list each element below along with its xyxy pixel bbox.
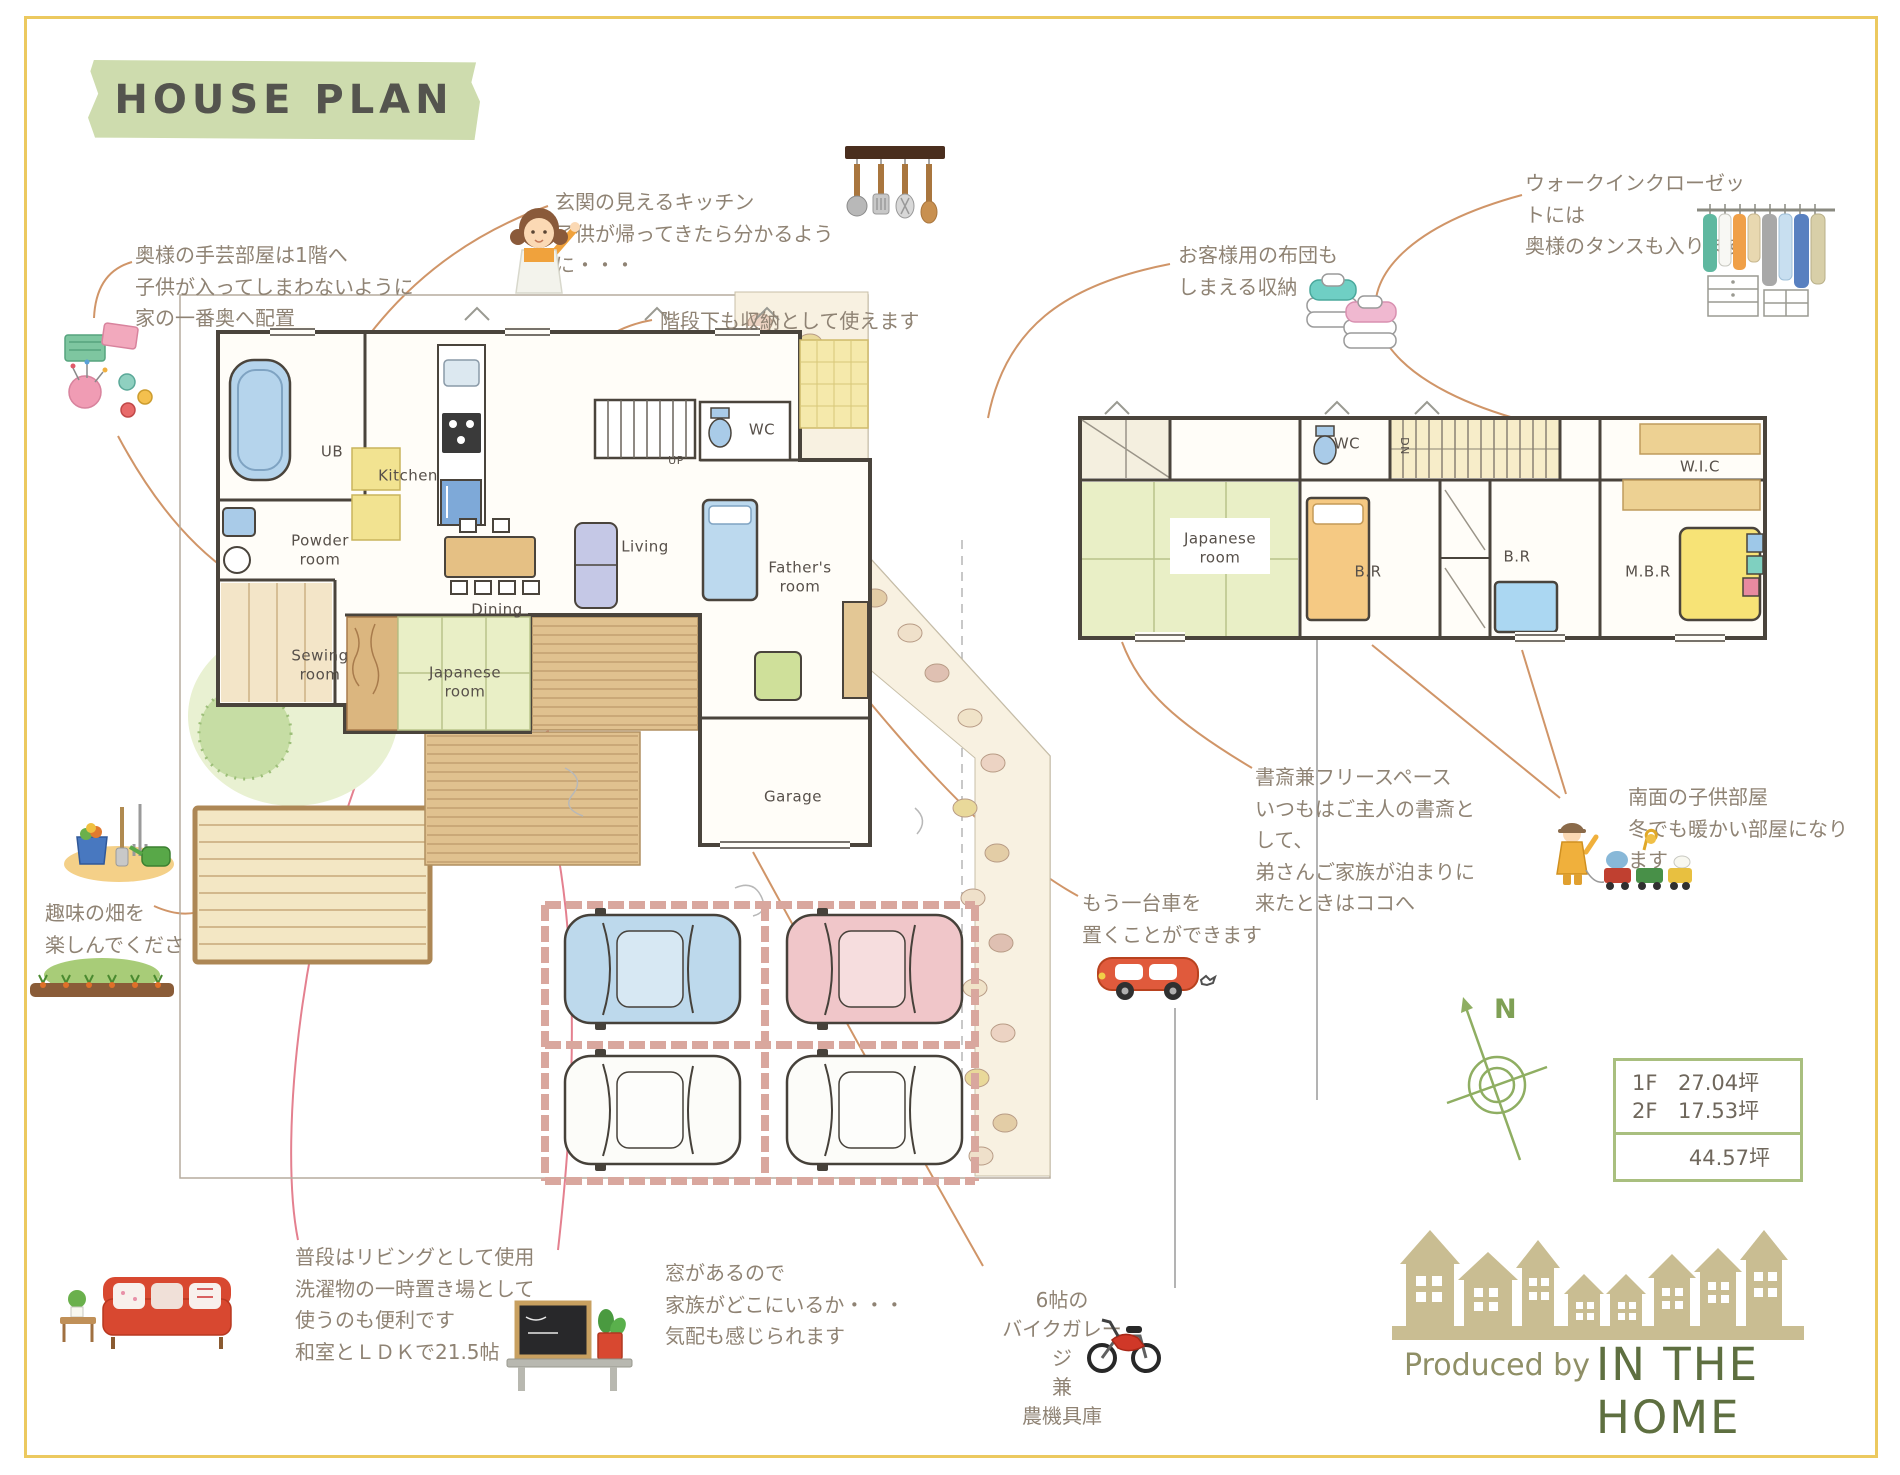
houses-row-icon <box>1392 1228 1804 1348</box>
room-label-father: Father'sroom <box>768 558 831 596</box>
room-label-japanese-2f: Japaneseroom <box>1176 526 1264 570</box>
house-plan-sheet: HOUSE PLAN <box>0 0 1900 1475</box>
note-under-stairs: 階段下も収納として使えます <box>660 306 919 338</box>
area-row-1f: 1F 27.04坪 <box>1632 1069 1790 1097</box>
area-row-2f: 2F 17.53坪 <box>1632 1097 1790 1125</box>
motorcycle-icon <box>1082 1298 1166 1378</box>
note-study-free-space: 書斎兼フリースペースいつもはご主人の書斎として、弟さんご家族が泊まりに来たときは… <box>1255 762 1475 920</box>
floor-area-table: 1F 27.04坪 2F 17.53坪 44.57坪 <box>1613 1058 1803 1182</box>
room-label-sewing: Sewingroom <box>291 646 348 684</box>
chef-woman-icon <box>492 198 587 298</box>
note-craft-room: 奥様の手芸部屋は1階へ子供が入ってしまわないように家の一番奥へ配置 <box>135 240 414 335</box>
produced-by-label: Produced by <box>1404 1348 1590 1383</box>
child-toy-train-icon <box>1552 812 1702 917</box>
room-label-wc-2f: WC <box>1334 435 1360 454</box>
sewing-kit-icon <box>55 320 170 430</box>
compass-north-label: N <box>1494 994 1517 1025</box>
room-label-wc-1f: WC <box>749 421 775 440</box>
room-label-powder: Powderroom <box>291 531 349 569</box>
sofa-icon <box>55 1265 245 1373</box>
room-label-br-right: B.R <box>1504 548 1531 567</box>
futon-stack-icon <box>1302 258 1400 350</box>
room-label-living: Living <box>621 538 669 557</box>
room-label-dining: Dining <box>471 601 522 620</box>
closet-clothes-icon <box>1692 172 1840 320</box>
room-label-mbr: M.B.R <box>1625 563 1671 582</box>
floor-plan-2f <box>1075 400 1775 650</box>
area-total: 44.57坪 <box>1616 1135 1800 1179</box>
room-label-wic: W.I.C <box>1680 458 1720 477</box>
vegetable-bed-icon <box>28 945 176 1005</box>
note-living-use: 普段はリビングとして使用洗濯物の一時置き場として使うのも便利です <box>295 1242 534 1337</box>
stairs-dn-label: DN <box>1397 437 1411 455</box>
floor-plan-1f <box>175 288 1075 1188</box>
stairs-up-label: UP <box>668 454 684 468</box>
room-label-japanese-1f: Japaneseroom <box>429 663 501 701</box>
note-window-presence: 窓があるので家族がどこにいるか・・・気配も感じられます <box>665 1258 904 1353</box>
room-label-kitchen: Kitchen <box>378 467 438 486</box>
note-ldk-size: 和室とＬＤＫで21.5帖 <box>295 1337 500 1369</box>
kitchen-utensils-icon <box>843 138 951 233</box>
note-kitchen: 玄関の見えるキッチン子供が帰ってきたら分かるように・・・ <box>555 187 833 282</box>
gardening-tools-icon <box>62 792 180 888</box>
brand-logo-text: IN THE HOME <box>1596 1338 1900 1444</box>
room-label-ub: UB <box>321 443 343 462</box>
room-label-br-left: B.R <box>1355 563 1382 582</box>
room-label-garage: Garage <box>764 788 822 807</box>
car-icon <box>1093 942 1218 1006</box>
blackboard-shelf-icon <box>502 1295 640 1397</box>
